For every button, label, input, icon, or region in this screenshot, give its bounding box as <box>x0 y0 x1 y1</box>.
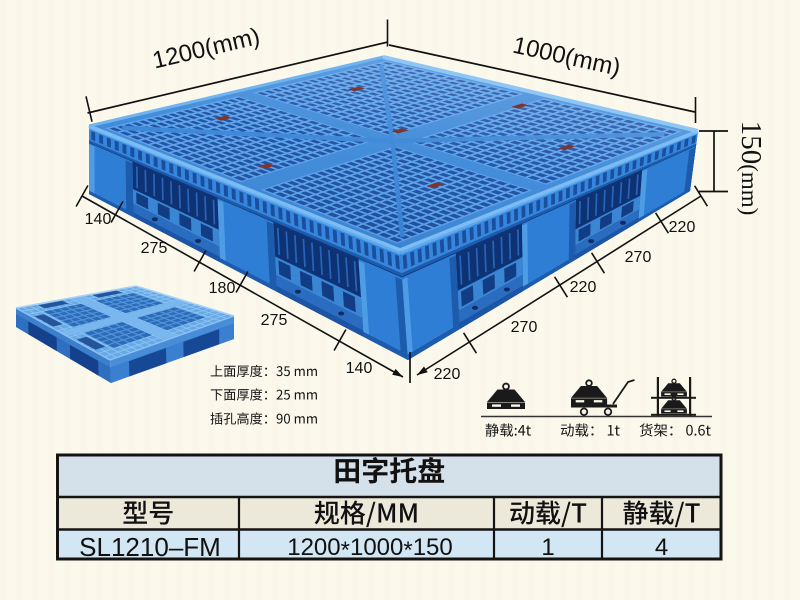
svg-text:140: 140 <box>85 211 112 228</box>
svg-text:180: 180 <box>209 280 236 297</box>
svg-text:1: 1 <box>541 534 554 561</box>
svg-text:1200*1000*150: 1200*1000*150 <box>287 534 453 564</box>
svg-text:140: 140 <box>346 360 373 377</box>
svg-text:270: 270 <box>625 249 652 266</box>
svg-text:220: 220 <box>434 366 461 383</box>
svg-text:220: 220 <box>570 279 597 296</box>
svg-text:275: 275 <box>261 312 288 329</box>
svg-text:150(mm): 150(mm) <box>735 121 767 216</box>
svg-text:SL1210–FM: SL1210–FM <box>79 532 221 562</box>
svg-text:270: 270 <box>511 319 538 336</box>
svg-text:275: 275 <box>141 240 168 257</box>
svg-text:220: 220 <box>669 219 696 236</box>
svg-text:4: 4 <box>655 534 668 561</box>
